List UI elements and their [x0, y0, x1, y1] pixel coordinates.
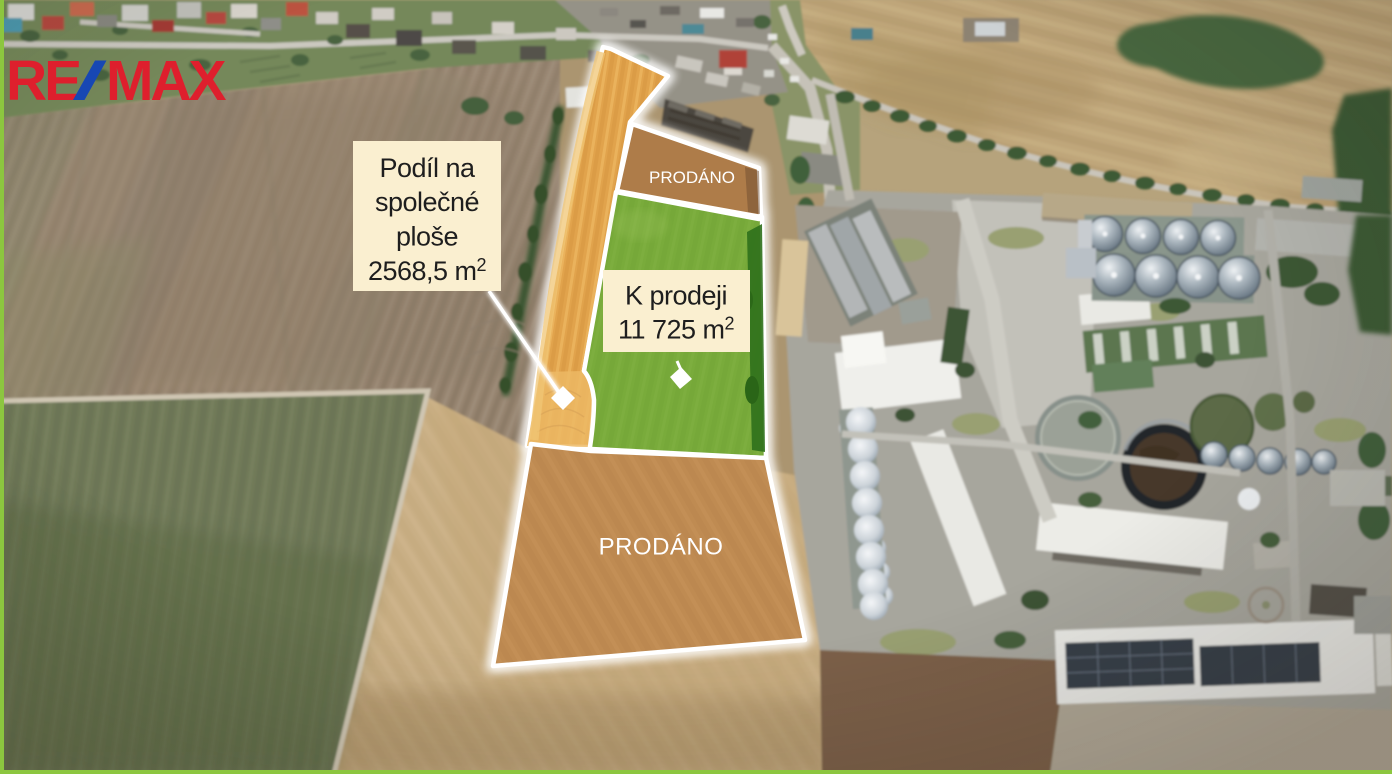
- svg-text:ploše: ploše: [396, 222, 458, 252]
- svg-text:společné: společné: [375, 187, 479, 217]
- svg-text:MAX: MAX: [106, 49, 226, 113]
- svg-text:11 725 m2: 11 725 m2: [618, 314, 735, 345]
- svg-text:2568,5 m2: 2568,5 m2: [368, 255, 487, 286]
- svg-text:PRODÁNO: PRODÁNO: [649, 168, 735, 187]
- svg-text:K prodeji: K prodeji: [625, 281, 727, 311]
- svg-text:Podíl na: Podíl na: [379, 153, 476, 183]
- svg-text:PRODÁNO: PRODÁNO: [599, 534, 724, 561]
- svg-text:RE: RE: [6, 49, 80, 113]
